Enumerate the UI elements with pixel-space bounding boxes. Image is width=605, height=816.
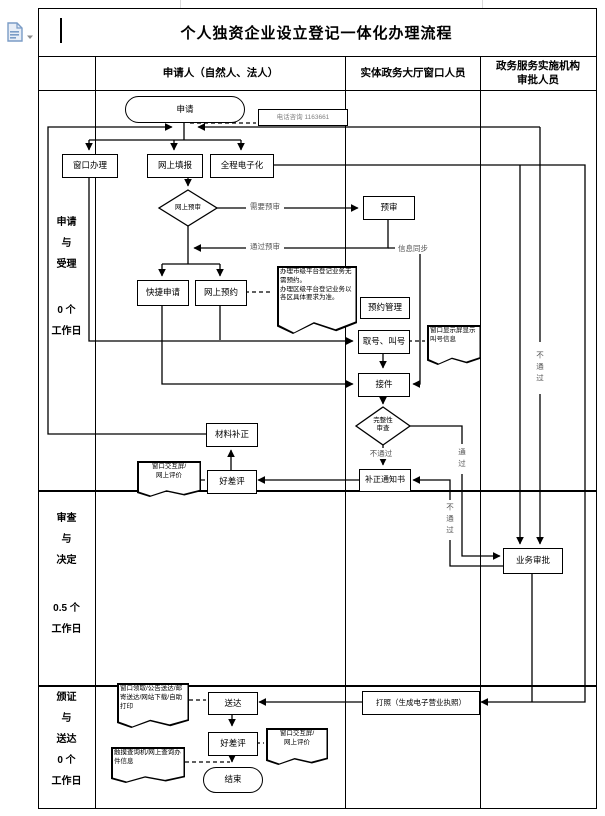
annotation-call-display-note: 窗口显示屏显示叫号信息: [427, 325, 481, 365]
node-start: 申请: [125, 96, 245, 123]
node-end: 结束: [203, 767, 263, 793]
node-material-correction: 材料补正: [206, 423, 258, 447]
document-page: 个人独资企业设立登记一体化办理流程 申请人（自然人、法人） 实体政务大厅窗口人员…: [0, 0, 605, 816]
node-phone-note: 电话咨询 1163661: [258, 109, 348, 126]
annotation-delivery-note: 窗口领取/公告送达/邮寄送达/网站下载/自助打印: [117, 683, 189, 728]
decision-label-online-pre-check: 网上预审: [158, 202, 218, 214]
annotation-text: 窗口领取/公告送达/邮寄送达/网站下载/自助打印: [117, 683, 189, 713]
node-take-number: 取号、叫号: [358, 330, 410, 354]
node-correction-notice: 补正通知书: [359, 469, 411, 492]
node-rating-1: 好差评: [207, 470, 257, 494]
annotation-query-note: 触摸查询机/网上查询办件信息: [111, 747, 185, 783]
node-booking-manage: 预约管理: [360, 297, 410, 319]
decision-label-completeness-check: 完整性 审查: [357, 413, 409, 437]
annotation-text: 办理市级平台登记业务无需预约。 办理区级平台登记业务以各区具体要求为准。: [277, 266, 357, 305]
annotation-rating-note-2: 窗口交互屏/ 网上评价: [266, 728, 328, 765]
annotation-rating-note-1: 窗口交互屏/ 网上评价: [137, 461, 201, 497]
annotation-text: 窗口显示屏显示叫号信息: [427, 325, 481, 347]
edge-label-pass: 通过: [455, 444, 469, 474]
edge-label-fail-1: 不通过: [366, 448, 396, 459]
node-print-license: 打照（生成电子营业执照）: [362, 691, 480, 715]
edge-label-fail-2: 不通过: [443, 500, 457, 540]
node-quick-apply: 快捷申请: [137, 280, 189, 306]
annotation-text: 触摸查询机/网上查询办件信息: [111, 747, 185, 769]
edge-label-need-pre-review: 需要预审: [246, 201, 284, 212]
edge-label-pass-pre-review: 通过预审: [246, 241, 284, 252]
edge-label-info-sync: 信息同步: [395, 243, 431, 254]
node-delivery: 送达: [208, 692, 258, 715]
node-online-fill: 网上填报: [147, 154, 203, 178]
node-online-booking: 网上预约: [195, 280, 247, 306]
annotation-text: 窗口交互屏/ 网上评价: [137, 461, 201, 483]
annotation-text: 窗口交互屏/ 网上评价: [266, 728, 328, 750]
edge-label-fail-right: 不通过: [533, 344, 547, 392]
node-receive: 接件: [358, 373, 410, 397]
annotation-booking-note: 办理市级平台登记业务无需预约。 办理区级平台登记业务以各区具体要求为准。: [277, 266, 357, 334]
node-approval: 业务审批: [503, 548, 563, 574]
node-rating-2: 好差评: [208, 732, 258, 756]
node-window-handle: 窗口办理: [62, 154, 118, 178]
node-pre-review: 预审: [363, 196, 415, 220]
node-full-electronic: 全程电子化: [210, 154, 274, 178]
